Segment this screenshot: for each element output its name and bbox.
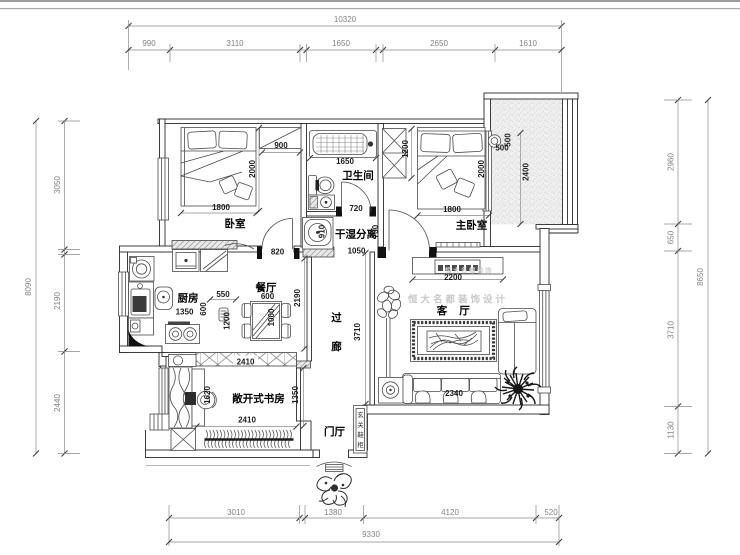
svg-text:10320: 10320 <box>334 15 357 24</box>
svg-text:3050: 3050 <box>53 176 62 194</box>
svg-text:1050: 1050 <box>348 247 366 256</box>
svg-text:客: 客 <box>436 304 448 317</box>
svg-text:柜: 柜 <box>357 440 364 449</box>
svg-text:4120: 4120 <box>441 508 459 517</box>
svg-text:卧室: 卧室 <box>225 217 246 230</box>
svg-text:8650: 8650 <box>696 268 705 286</box>
svg-text:720: 720 <box>349 204 363 213</box>
svg-text:2340: 2340 <box>445 389 463 398</box>
svg-text:730: 730 <box>371 224 380 238</box>
svg-text:敞开式书房: 敞开式书房 <box>232 392 285 405</box>
svg-text:1800: 1800 <box>212 203 230 212</box>
svg-text:9330: 9330 <box>362 530 380 539</box>
svg-text:厨房: 厨房 <box>178 292 199 305</box>
svg-text:恒大名都装饰: 恒大名都装饰 <box>445 266 493 275</box>
svg-text:3710: 3710 <box>353 323 362 341</box>
svg-text:鞋: 鞋 <box>357 430 364 439</box>
svg-text:厅: 厅 <box>459 305 470 317</box>
svg-text:900: 900 <box>274 141 288 150</box>
svg-text:1200: 1200 <box>401 140 410 158</box>
svg-text:1610: 1610 <box>519 39 537 48</box>
svg-text:2400: 2400 <box>522 163 531 181</box>
svg-text:2190: 2190 <box>53 292 62 310</box>
svg-text:1350: 1350 <box>176 308 194 317</box>
svg-text:1000: 1000 <box>267 308 276 326</box>
svg-text:恒大名都装饰设计: 恒大名都装饰设计 <box>408 294 508 306</box>
svg-text:2000: 2000 <box>248 160 257 178</box>
svg-text:550: 550 <box>216 290 230 299</box>
svg-text:910: 910 <box>318 224 327 238</box>
svg-text:820: 820 <box>271 248 285 257</box>
svg-text:2650: 2650 <box>430 39 448 48</box>
svg-text:1650: 1650 <box>336 157 354 166</box>
svg-text:500: 500 <box>504 133 513 147</box>
svg-text:3710: 3710 <box>667 321 676 339</box>
svg-text:520: 520 <box>544 508 558 517</box>
svg-text:1800: 1800 <box>443 205 461 214</box>
svg-text:1650: 1650 <box>332 39 350 48</box>
svg-text:650: 650 <box>667 230 676 244</box>
svg-text:1130: 1130 <box>667 421 676 439</box>
svg-text:3110: 3110 <box>226 39 244 48</box>
svg-text:3010: 3010 <box>227 508 245 517</box>
svg-text:2000: 2000 <box>477 160 486 178</box>
svg-text:廊: 廊 <box>331 340 342 353</box>
svg-text:2440: 2440 <box>53 394 62 412</box>
svg-text:600: 600 <box>261 292 275 301</box>
svg-text:过: 过 <box>331 311 342 324</box>
svg-text:2190: 2190 <box>293 289 302 307</box>
svg-text:600: 600 <box>199 302 208 316</box>
svg-text:门厅: 门厅 <box>324 425 345 438</box>
svg-text:玄: 玄 <box>357 410 364 419</box>
svg-text:主卧室: 主卧室 <box>456 219 488 232</box>
svg-text:8090: 8090 <box>24 278 33 296</box>
svg-text:990: 990 <box>142 39 156 48</box>
svg-text:2960: 2960 <box>667 153 676 171</box>
svg-text:2410: 2410 <box>237 358 255 367</box>
svg-text:关: 关 <box>357 420 364 429</box>
svg-text:1350: 1350 <box>291 386 300 404</box>
svg-text:卫生间: 卫生间 <box>342 169 374 182</box>
svg-text:2410: 2410 <box>238 416 256 425</box>
svg-text:1620: 1620 <box>203 386 212 404</box>
svg-text:1380: 1380 <box>324 508 342 517</box>
